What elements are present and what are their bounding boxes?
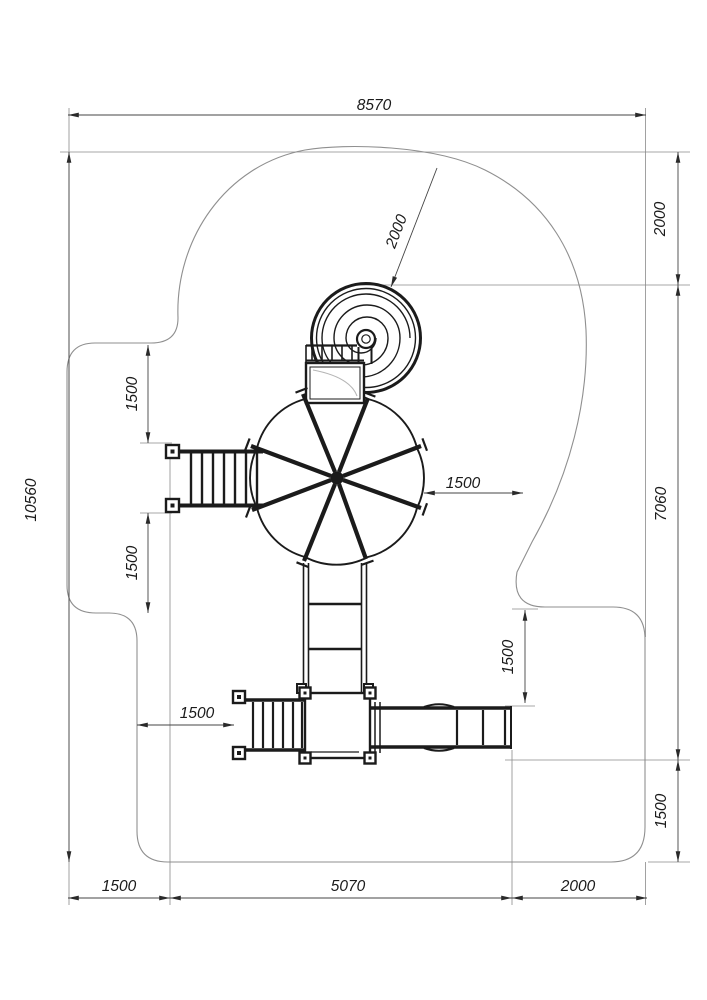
dim-bottom-span: 5070 (331, 878, 366, 895)
ladder-rungs (191, 453, 257, 504)
plan-canvas: 8570 10560 2000 7060 1500 1500 5070 2000… (0, 0, 707, 1000)
dim-overall-width: 8570 (357, 97, 392, 114)
dim-bottom-left: 1500 (102, 878, 137, 895)
stairs-lower-left (233, 691, 305, 759)
exit-slide-right (371, 702, 511, 753)
dim-platform-right: 1500 (446, 475, 481, 492)
octagon-hub (331, 472, 343, 484)
access-ladder-left (166, 445, 263, 512)
dim-stairs-left: 1500 (180, 705, 215, 722)
spiral-center-pole (357, 330, 375, 348)
dim-slide-top: 1500 (500, 639, 517, 674)
dim-right-span: 7060 (653, 486, 670, 521)
playground-plan-drawing: 8570 10560 2000 7060 1500 1500 5070 2000… (0, 0, 707, 1000)
dim-left-upper: 1500 (124, 376, 141, 411)
dim-right-bottom: 1500 (653, 793, 670, 828)
bridge-ladder (297, 563, 373, 693)
lower-platform (300, 688, 376, 764)
dim-left-lower: 1500 (124, 545, 141, 580)
stair-treads (253, 702, 302, 748)
dim-bottom-right: 2000 (560, 878, 596, 895)
dim-overall-height: 10560 (23, 478, 40, 521)
dim-right-top: 2000 (652, 201, 669, 237)
